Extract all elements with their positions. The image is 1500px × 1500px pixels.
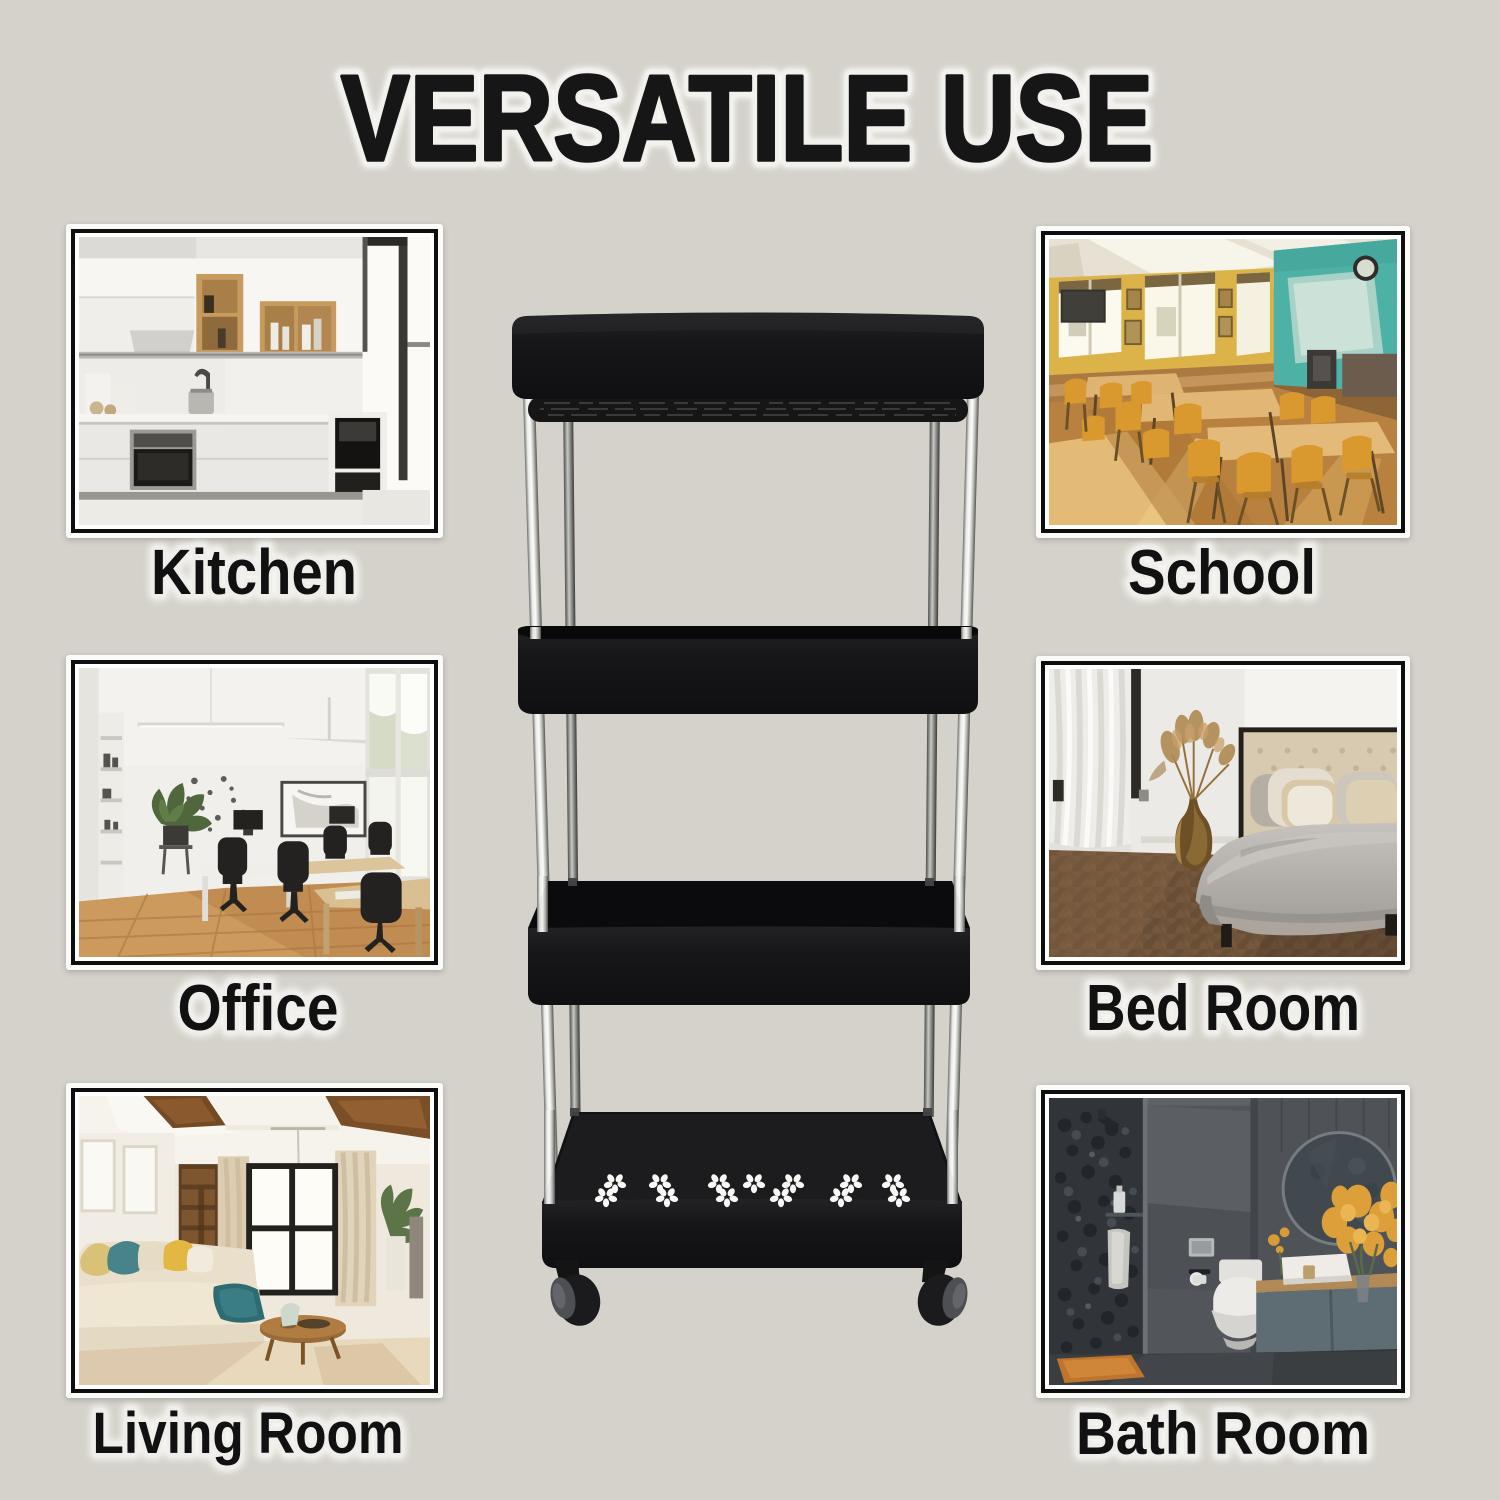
- svg-text:Office: Office: [178, 971, 339, 1044]
- svg-text:School: School: [1128, 538, 1316, 608]
- svg-text:Kitchen: Kitchen: [151, 536, 357, 608]
- svg-text:Bath Room: Bath Room: [1076, 1400, 1370, 1467]
- svg-text:Bed Room: Bed Room: [1086, 971, 1360, 1044]
- svg-text:Living Room: Living Room: [93, 1401, 404, 1466]
